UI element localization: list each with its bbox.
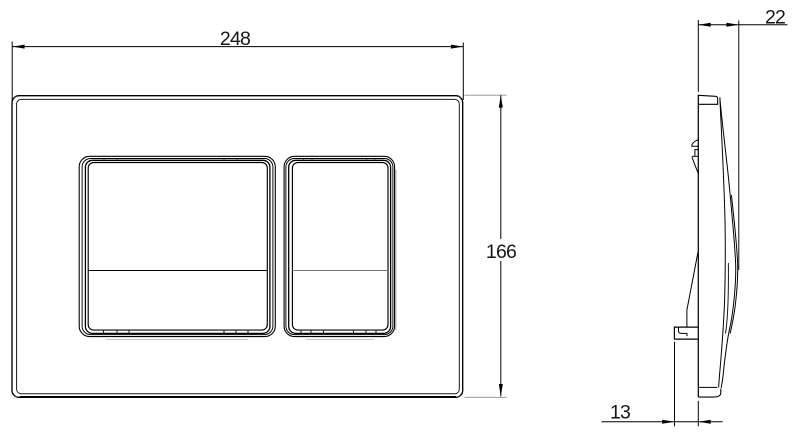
svg-text:22: 22	[765, 6, 785, 28]
svg-text:13: 13	[610, 402, 630, 424]
svg-text:248: 248	[220, 28, 250, 50]
svg-text:166: 166	[486, 241, 516, 263]
